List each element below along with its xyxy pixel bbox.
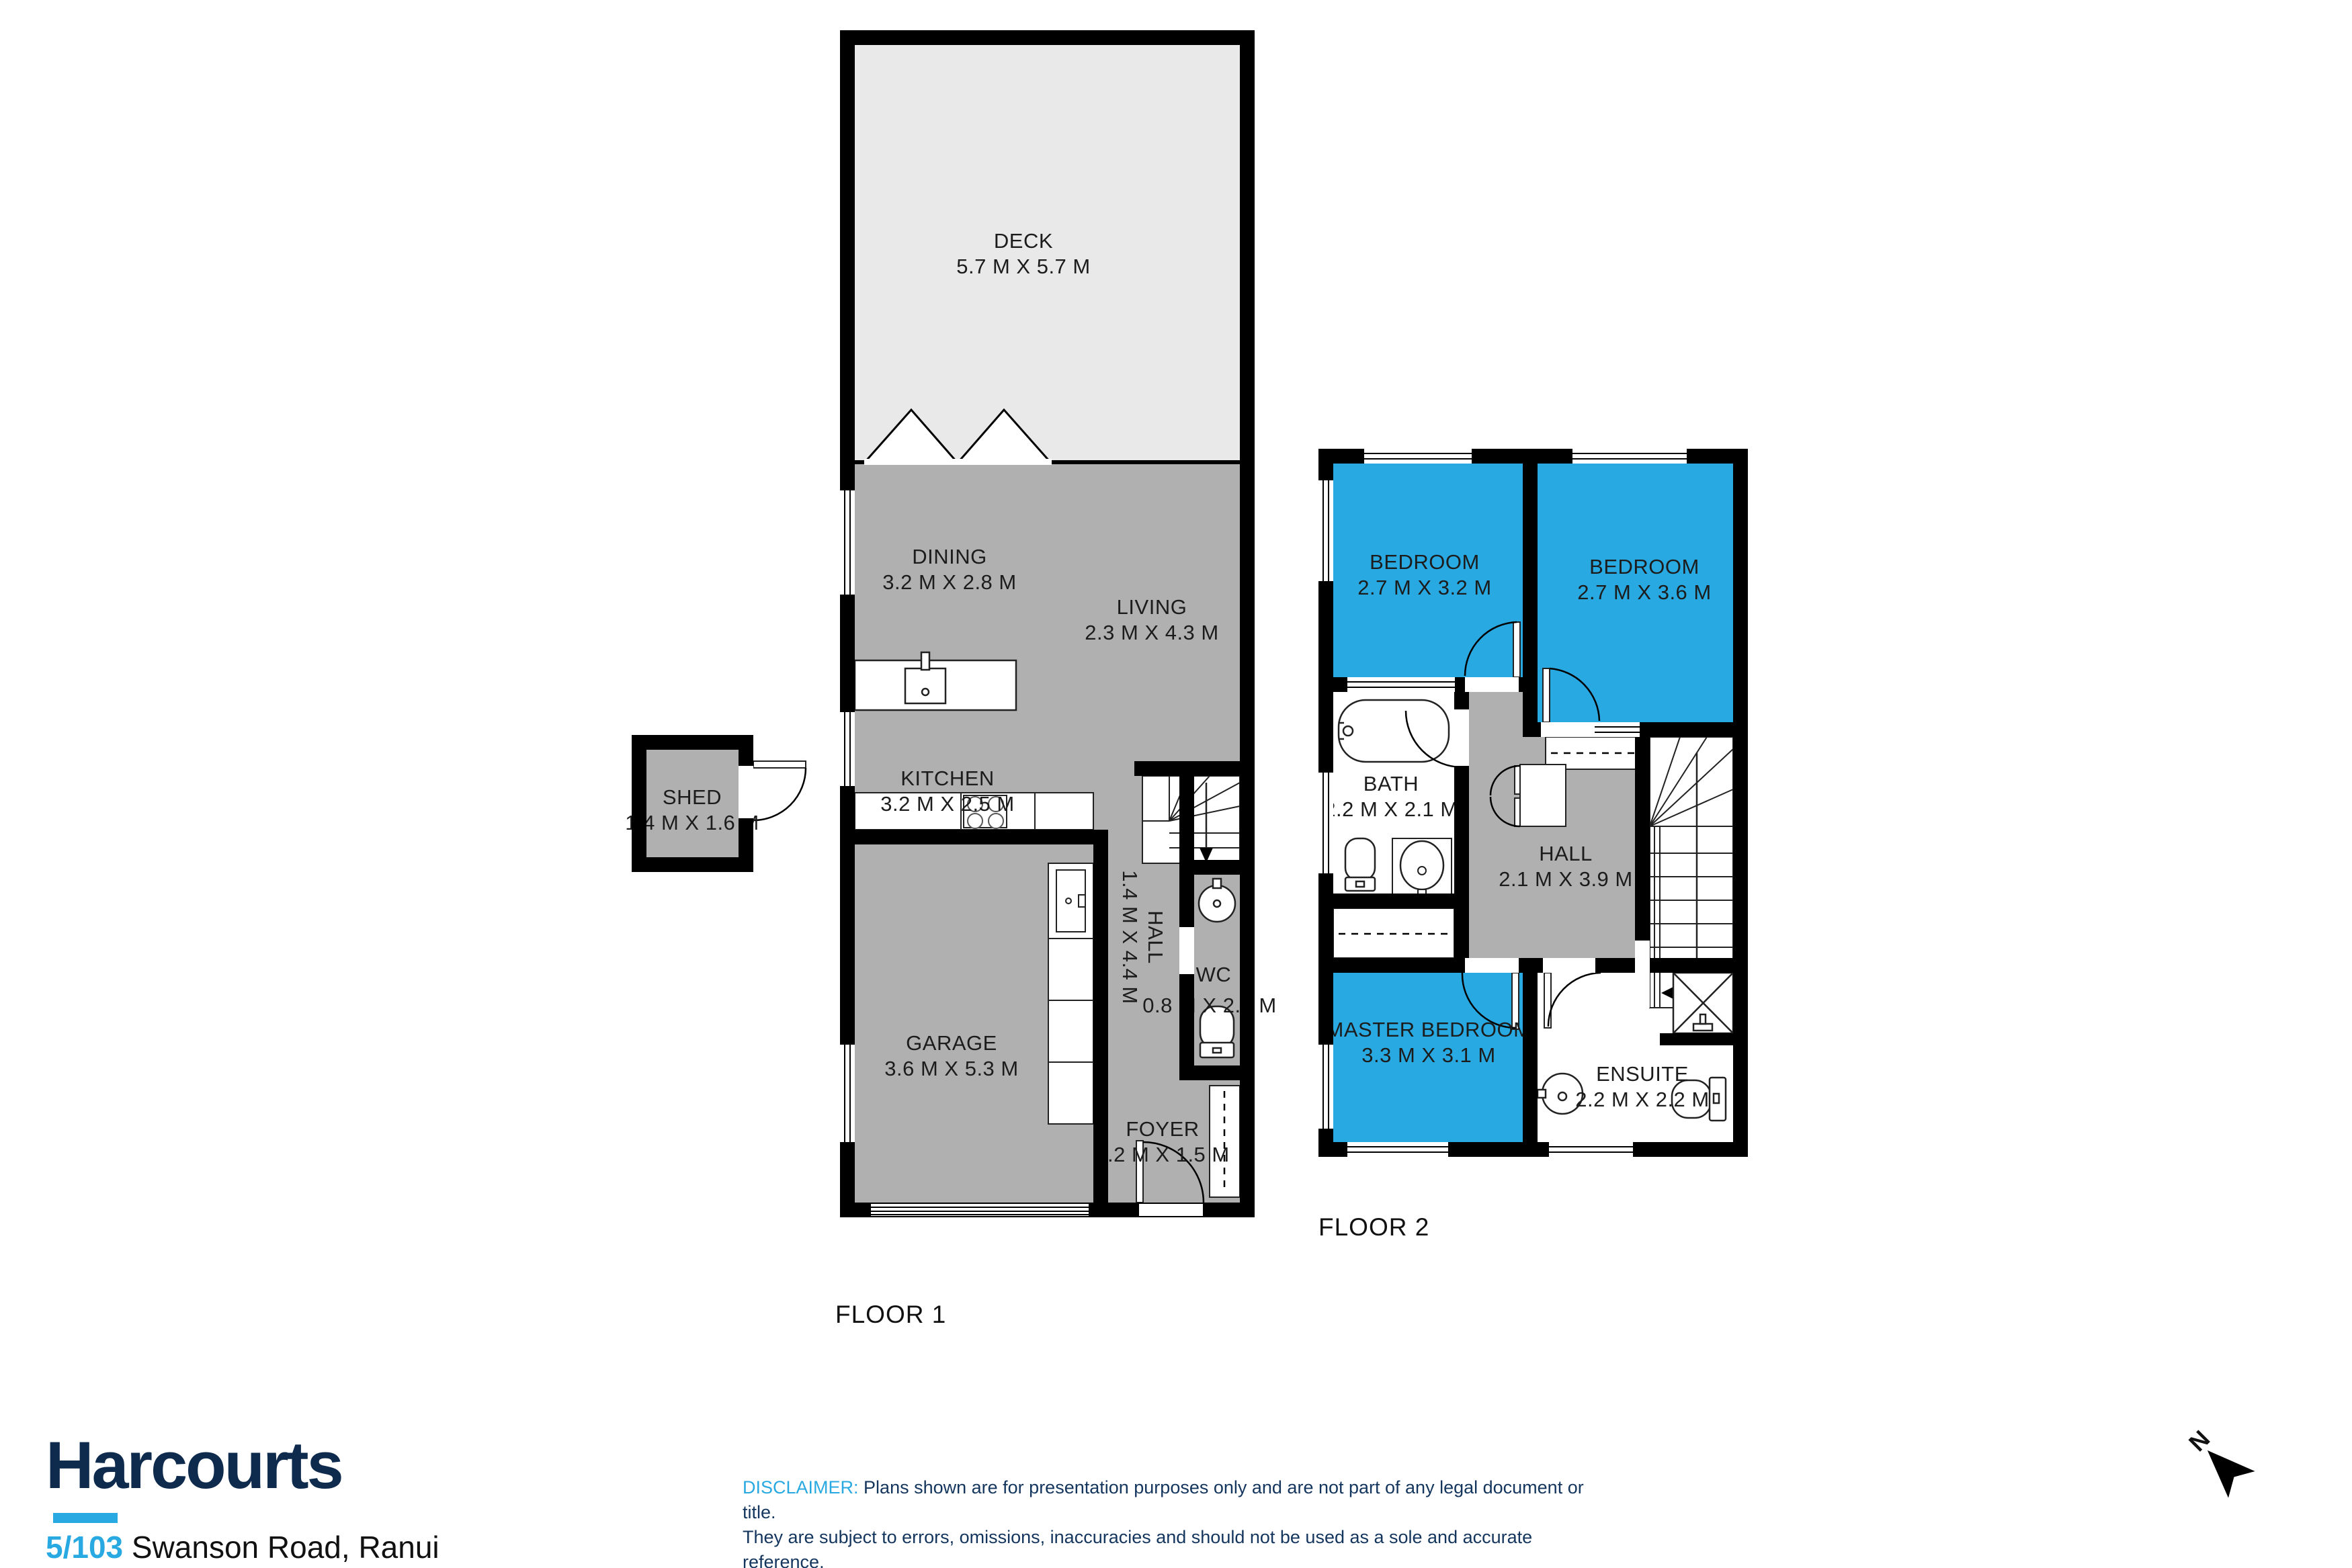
bath-sink-icon [1392,838,1452,900]
room-label-foyer: FOYER 1.2 M X 1.5 M [1095,1117,1229,1168]
room-label-dining: DINING 3.2 M X 2.8 M [882,544,1016,595]
room-label-wc: WC [1196,962,1232,988]
harcourts-logo: Harcourts [46,1427,342,1504]
wc-door-icon [1180,928,1187,973]
hall2-name: HALL [1499,841,1632,867]
bathtub-icon [1339,700,1449,762]
disclaimer-line2: They are subject to errors, omissions, i… [743,1525,1603,1568]
room-label-hall2: HALL 2.1 M X 3.9 M [1499,841,1632,892]
dining-dims: 3.2 M X 2.8 M [882,570,1016,595]
room-label-garage: GARAGE 3.6 M X 5.3 M [884,1031,1018,1082]
deck-dims: 5.7 M X 5.7 M [956,254,1090,279]
floor1-label: FLOOR 1 [835,1301,946,1329]
bath-dims: 2.2 M X 2.1 M [1324,797,1458,822]
room-label-master: MASTER BEDROOM 3.3 M X 3.1 M [1327,1017,1531,1068]
room-label-kitchen: KITCHEN 3.2 M X 2.5 M [880,766,1014,817]
master-dims: 3.3 M X 3.1 M [1327,1043,1531,1068]
garage-dims: 3.6 M X 5.3 M [884,1056,1018,1082]
room-label-deck: DECK 5.7 M X 5.7 M [956,228,1090,279]
hall1-name: HALL [1142,870,1168,1004]
room-label-living: LIVING 2.3 M X 4.3 M [1085,595,1218,646]
stairs-floor2 [1650,737,1733,1008]
living-dims: 2.3 M X 4.3 M [1085,620,1218,646]
shed-name: SHED [625,785,759,810]
floor2-label: FLOOR 2 [1318,1213,1429,1242]
floorplan-graphics [0,0,2352,1568]
shed-dims: 1.4 M X 1.6 M [625,810,759,836]
address-street: Swanson Road, Ranui [123,1530,439,1565]
living-name: LIVING [1085,595,1218,620]
room-label-bedroom1: BEDROOM 2.7 M X 3.2 M [1357,550,1491,601]
shed-door-icon [753,761,806,820]
disclaimer-text: DISCLAIMER: Plans shown are for presenta… [743,1475,1603,1568]
disclaimer-label: DISCLAIMER: [743,1477,859,1497]
master-name: MASTER BEDROOM [1327,1017,1531,1043]
foyer-dims: 1.2 M X 1.5 M [1095,1142,1229,1168]
kitchen-island [855,652,1016,710]
room-label-bedroom2: BEDROOM 2.7 M X 3.6 M [1577,554,1711,605]
room-label-bath: BATH 2.2 M X 2.1 M [1324,771,1458,822]
ensuite-name: ENSUITE [1575,1061,1709,1087]
room-label-shed: SHED 1.4 M X 1.6 M [625,785,759,836]
hall1-dims: 1.4 M X 4.4 M [1117,870,1142,1004]
shower-icon [1673,973,1733,1033]
wc-dims: 0.8 M X 2.2 M [1142,993,1276,1018]
bedroom2-name: BEDROOM [1577,554,1711,580]
kitchen-name: KITCHEN [880,766,1014,791]
floorplan-page: DECK 5.7 M X 5.7 M DINING 3.2 M X 2.8 M … [0,0,2352,1568]
property-address: 5/103 Swanson Road, Ranui [46,1529,439,1565]
dining-name: DINING [882,544,1016,570]
room-label-hall1: HALL 1.4 M X 4.4 M [1117,870,1168,1004]
bath-toilet-icon [1345,838,1375,891]
wc-name: WC [1196,962,1232,988]
hall2-dims: 2.1 M X 3.9 M [1499,867,1632,892]
address-number: 5/103 [46,1530,123,1565]
room-label-ensuite: ENSUITE 2.2 M X 2.2 M [1575,1061,1709,1113]
wardrobe-master [1333,908,1454,958]
kitchen-dims: 3.2 M X 2.5 M [880,791,1014,817]
ensuite-dims: 2.2 M X 2.2 M [1575,1087,1709,1113]
garage-name: GARAGE [884,1031,1018,1056]
stairs-floor1 [1142,776,1240,863]
foyer-name: FOYER [1095,1117,1229,1142]
bath-name: BATH [1324,771,1458,797]
bedroom1-name: BEDROOM [1357,550,1491,575]
garage-storage [1048,863,1093,1124]
deck-name: DECK [956,228,1090,254]
bedroom1-dims: 2.7 M X 3.2 M [1357,575,1491,601]
room-label-wc-dims: 0.8 M X 2.2 M [1142,993,1276,1018]
logo-underline [53,1513,118,1523]
disclaimer-line1: Plans shown are for presentation purpose… [743,1477,1584,1522]
bedroom2-dims: 2.7 M X 3.6 M [1577,580,1711,605]
